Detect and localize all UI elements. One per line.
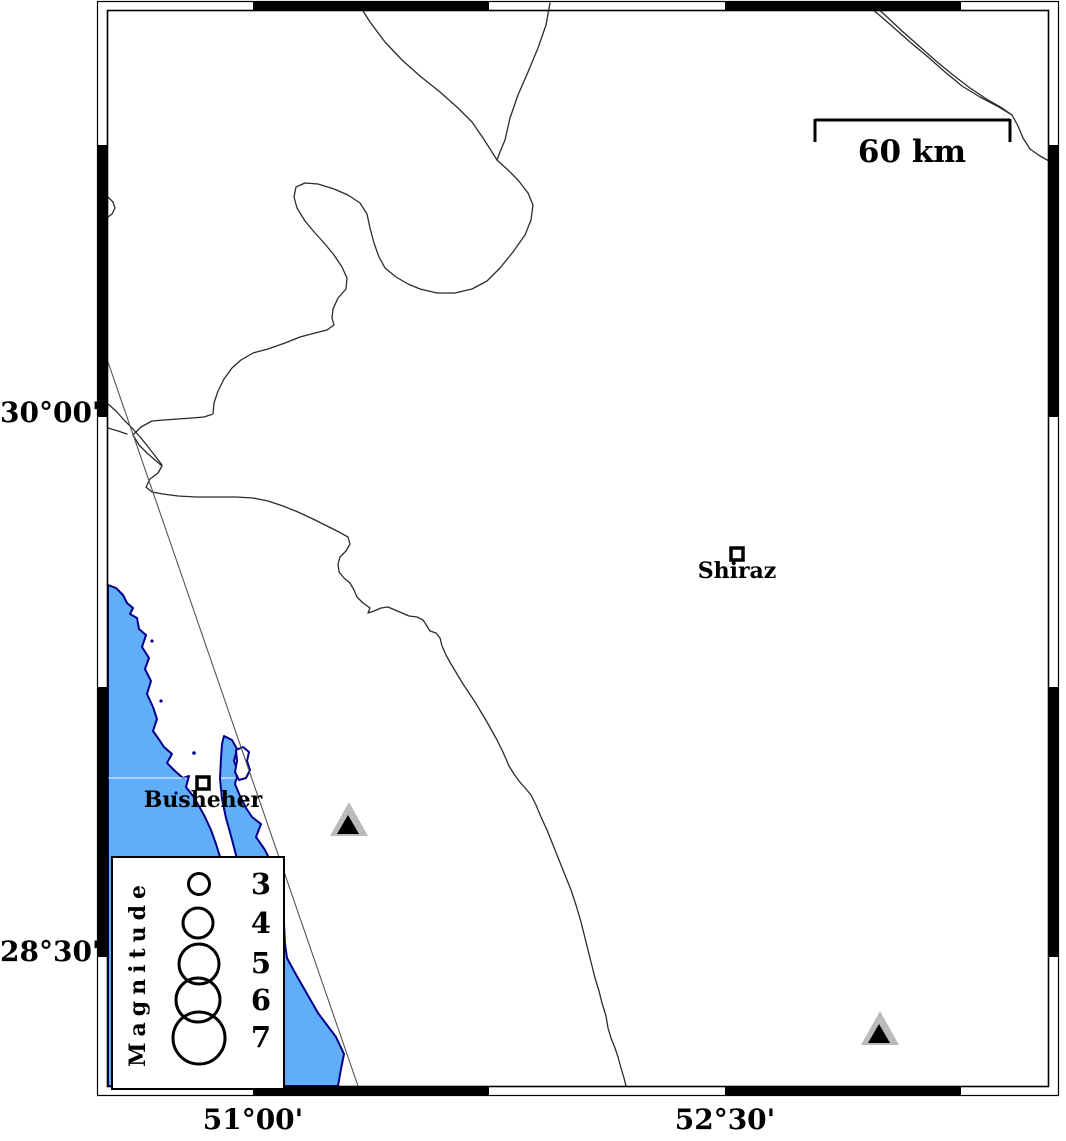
legend-circle-m7: [173, 1012, 225, 1064]
boundary-north-west-branch: [358, 3, 497, 160]
frame-seg: [253, 2, 489, 11]
legend-circle-m4: [183, 908, 213, 938]
scale-bar-label: 60 km: [827, 136, 997, 168]
frame-seg: [1048, 687, 1058, 957]
lon-label-51e: 51°00': [183, 1105, 323, 1135]
lon-label-5230e: 52°30': [655, 1105, 795, 1135]
boundary-left-stub: [108, 428, 127, 434]
station-triangle-2: [861, 1011, 899, 1045]
city-label-shiraz: Shiraz: [677, 559, 797, 583]
boundary-left-arc: [108, 197, 115, 217]
legend-circle-m3: [189, 874, 210, 895]
station-triangle-1: [330, 802, 368, 836]
city-label-busheher: Busheher: [128, 788, 278, 812]
frame-seg: [98, 687, 108, 957]
legend-value-6: 6: [240, 985, 282, 1015]
legend-value-5: 5: [240, 948, 282, 978]
legend-value-4: 4: [240, 908, 282, 938]
frame-seg: [1048, 145, 1058, 417]
river-northeast-branch: [872, 3, 1012, 115]
lat-label-2830n: 28°30': [0, 937, 92, 967]
legend-value-3: 3: [240, 869, 282, 899]
frame-seg: [725, 2, 961, 11]
lat-label-30n: 30°00': [0, 398, 92, 428]
boundary-left-fork: [108, 404, 162, 465]
magnitude-legend: Magnitude 3 4 5 6 7: [111, 856, 285, 1090]
frame-seg: [253, 1086, 489, 1095]
frame-seg: [725, 1086, 961, 1095]
map-stage: 30°00' 28°30' 51°00' 52°30' 60 km Shiraz…: [0, 0, 1066, 1141]
frame-seg: [98, 145, 108, 417]
boundary-north-east-branch: [497, 3, 550, 160]
legend-value-7: 7: [240, 1022, 282, 1052]
